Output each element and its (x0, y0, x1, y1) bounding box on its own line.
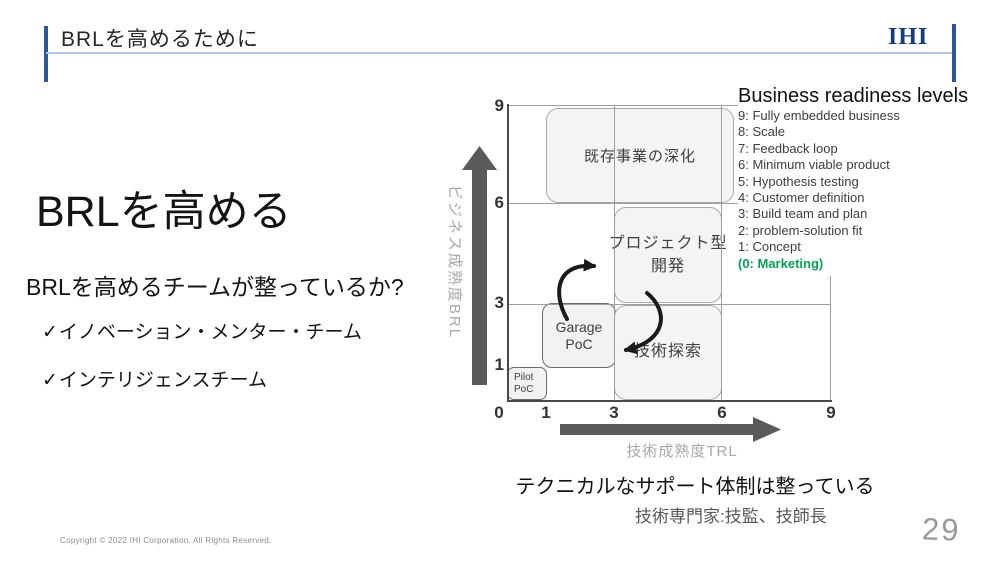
brl-level-item: 9: Fully embedded business (738, 108, 1000, 124)
x-tick-label: 3 (601, 403, 627, 423)
brl-level-item: 3: Build team and plan (738, 206, 1000, 222)
title-accent-bar-left (44, 26, 48, 82)
checklist-item-label: イノベーション・メンター・チーム (59, 322, 362, 343)
page-number: 29 (921, 511, 961, 548)
gridline-brl3 (508, 304, 831, 305)
copyright-text: Copyright © 2022 IHI Corporation. All Ri… (60, 536, 272, 545)
checklist-item: ✓インテリジェンスチーム (42, 365, 267, 392)
brl-level-item: 1: Concept (738, 239, 1000, 255)
main-heading: BRLを高める (36, 177, 292, 239)
check-icon: ✓ (42, 322, 58, 343)
checklist-item-label: インテリジェンスチーム (59, 370, 267, 391)
brl-levels-title: Business readiness levels (738, 84, 1000, 108)
region-tech-exploration: 技術探索 (614, 305, 722, 400)
title-accent-bar-right (952, 24, 956, 82)
brl-level-item: 6: Minimum viable product (738, 157, 1000, 173)
brl-axis-arrow-icon (462, 146, 497, 385)
page-title: BRLを高めるために (61, 23, 259, 53)
brl-level-item: 4: Customer definition (738, 190, 1000, 206)
support-caption: テクニカルなサポート体制は整っている (515, 470, 875, 499)
brl-level-item: 7: Feedback loop (738, 141, 1000, 157)
question-text: BRLを高めるチームが整っているか? (26, 268, 404, 302)
brl-level-item-marketing: (0: Marketing) (738, 256, 1000, 272)
brl-level-item: 5: Hypothesis testing (738, 174, 1000, 190)
region-label: プロジェクト型 開発 (609, 232, 728, 278)
gridline-trl3 (614, 105, 615, 401)
brl-level-item: 8: Scale (738, 124, 1000, 140)
region-label: Pilot PoC (514, 372, 533, 395)
y-tick-label: 6 (478, 193, 504, 213)
region-garage-poc: Garage PoC (542, 303, 616, 368)
checklist-item: ✓イノベーション・メンター・チーム (42, 317, 362, 344)
region-existing-business: 既存事業の深化 (546, 108, 734, 203)
region-pilot-poc: Pilot PoC (507, 367, 547, 400)
y-tick-label: 3 (478, 293, 504, 313)
y-axis-line (507, 104, 509, 402)
x-tick-label: 6 (709, 403, 735, 423)
experts-caption: 技術専門家:技監、技師長 (635, 502, 827, 527)
y-tick-label: 9 (478, 96, 504, 116)
region-label: 技術探索 (634, 337, 702, 361)
x-axis-title: 技術成熟度TRL (612, 440, 752, 461)
gridline-trl6 (721, 105, 722, 401)
x-tick-label: 1 (533, 403, 559, 423)
ihi-logo: IHI (888, 24, 928, 51)
region-label: 既存事業の深化 (584, 145, 696, 166)
check-icon: ✓ (42, 370, 58, 391)
x-axis-line (507, 400, 832, 402)
trl-axis-arrow-icon (560, 417, 781, 442)
region-label: Garage PoC (556, 319, 603, 353)
x-tick-label: 0 (486, 403, 512, 423)
region-project-development: プロジェクト型 開発 (614, 207, 722, 303)
brl-levels-panel: Business readiness levels 9: Fully embed… (738, 84, 1000, 276)
y-tick-label: 1 (478, 355, 504, 375)
brl-level-item: 2: problem-solution fit (738, 223, 1000, 239)
x-tick-label: 9 (818, 403, 844, 423)
y-axis-title: ビジネス成熟度BRL (446, 182, 466, 342)
header-divider (46, 52, 954, 54)
